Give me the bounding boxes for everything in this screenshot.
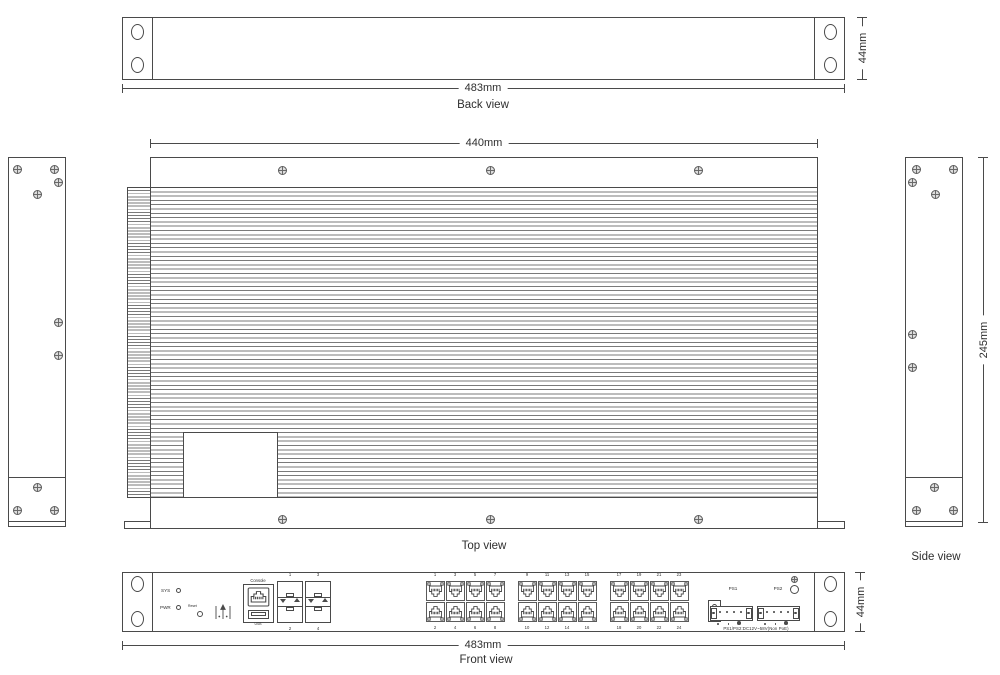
- shape: [523, 589, 531, 592]
- front-height-dim: 44mm: [855, 581, 867, 624]
- terminal-pin-dot: [717, 623, 719, 625]
- power-spec: PS1/PS2:DC12V~58V(Non PoE): [723, 626, 788, 631]
- mount-hole: [131, 24, 144, 40]
- rj45-port-14: [558, 602, 577, 622]
- shape: [579, 583, 581, 585]
- screw-icon: [931, 190, 940, 199]
- triangle-down-icon: [280, 599, 286, 603]
- port-number-10: 10: [525, 625, 530, 630]
- rj45-port-20: [630, 602, 649, 622]
- screw-icon: [278, 515, 287, 524]
- usb-label: USB: [255, 622, 262, 626]
- screw-icon: [50, 165, 59, 174]
- shape: [471, 589, 479, 592]
- back-height-dim: 44mm: [857, 27, 869, 70]
- side-view-left-base: [8, 521, 66, 527]
- up-arrows-icon: [214, 603, 232, 621]
- shape: [579, 618, 581, 620]
- rj45-port-8: [486, 602, 505, 622]
- shape: [226, 616, 228, 618]
- shape: [671, 583, 673, 585]
- dim-tick: [122, 641, 123, 650]
- port-number-8: 8: [494, 625, 496, 630]
- shape: [487, 583, 489, 585]
- port-number-13: 13: [565, 572, 570, 577]
- rj45-port-21: [650, 581, 669, 601]
- shape: [675, 612, 683, 615]
- console-port: [247, 587, 270, 607]
- screw-icon: [33, 190, 42, 199]
- port-number-21: 21: [657, 572, 662, 577]
- top-view-front-band: [150, 497, 818, 529]
- ps2-label: PS2: [774, 586, 783, 591]
- shape: [572, 583, 574, 585]
- triangle-down-icon: [308, 599, 314, 603]
- rj45-port-3: [446, 581, 465, 601]
- mount-hole: [131, 611, 144, 627]
- terminal-pin-dot: [784, 621, 788, 625]
- screw-icon: [949, 165, 958, 174]
- screw-icon: [13, 165, 22, 174]
- terminal-pin-dot: [733, 611, 735, 613]
- shape: [500, 618, 502, 620]
- sfp-latch: [286, 593, 294, 597]
- shape: [440, 583, 442, 585]
- sys-led-label: SYS: [161, 588, 170, 593]
- screw-icon: [50, 506, 59, 515]
- mount-hole: [824, 24, 837, 40]
- shape: [559, 583, 561, 585]
- dim-tick: [978, 522, 988, 523]
- back-width-dim: 483mm: [459, 82, 508, 94]
- shape: [451, 612, 459, 615]
- shape: [631, 583, 633, 585]
- mount-hole: [824, 57, 837, 73]
- shape: [491, 589, 499, 592]
- top-view-back-band: [150, 157, 818, 188]
- terminal-pin-dot: [787, 611, 789, 613]
- shape: [487, 618, 489, 620]
- rj45-port-12: [538, 602, 557, 622]
- dim-tick: [857, 79, 867, 80]
- side-view-left-band-line: [9, 477, 65, 478]
- shape: [519, 583, 521, 585]
- shape: [552, 583, 554, 585]
- shape: [447, 618, 449, 620]
- shape: [651, 583, 653, 585]
- rj45-port-9: [518, 581, 537, 601]
- shape: [671, 618, 673, 620]
- port-number-19: 19: [637, 572, 642, 577]
- shape: [451, 589, 459, 592]
- port-number-24: 24: [677, 625, 682, 630]
- dim-tick: [844, 641, 845, 650]
- shape: [491, 612, 499, 615]
- shape: [655, 612, 663, 615]
- shape: [631, 618, 633, 620]
- shape: [539, 618, 541, 620]
- shape: [664, 618, 666, 620]
- shape: [467, 618, 469, 620]
- shape: [539, 583, 541, 585]
- back-view-label: Back view: [457, 99, 509, 111]
- shape: [427, 583, 429, 585]
- rj45-port-22: [650, 602, 669, 622]
- port-number-3: 3: [454, 572, 456, 577]
- rj45-port-6: [466, 602, 485, 622]
- terminal-pin-dot: [719, 611, 721, 613]
- dim-tick: [150, 139, 151, 148]
- triangle-up-icon: [294, 598, 300, 602]
- terminal-pin-dot: [780, 611, 782, 613]
- side-fins-left: [127, 187, 151, 498]
- shape: [431, 612, 439, 615]
- mount-hole: [131, 57, 144, 73]
- sfp-latch: [314, 593, 322, 597]
- rj45-port-5: [466, 581, 485, 601]
- shape: [460, 618, 462, 620]
- terminal-pin-dot: [740, 611, 742, 613]
- shape: [500, 583, 502, 585]
- rj45-port-4: [446, 602, 465, 622]
- side-view-left-body: [8, 157, 66, 522]
- rj45-port-18: [610, 602, 629, 622]
- mount-hole: [824, 576, 837, 592]
- ground-screw-icon: [791, 576, 798, 583]
- side-height-dim: 245mm: [978, 316, 990, 365]
- back-ear-divider-left: [152, 17, 153, 80]
- shape: [532, 618, 534, 620]
- rj45-port-24: [670, 602, 689, 622]
- top-view-label: Top view: [462, 540, 507, 552]
- shape: [592, 583, 594, 585]
- shape: [644, 618, 646, 620]
- shape: [467, 583, 469, 585]
- port-number-14: 14: [565, 625, 570, 630]
- screw-icon: [54, 178, 63, 187]
- screw-icon: [930, 483, 939, 492]
- port-number-9: 9: [526, 572, 528, 577]
- shape: [552, 618, 554, 620]
- port-number-16: 16: [585, 625, 590, 630]
- side-view-right-body: [905, 157, 963, 522]
- mount-hole: [824, 611, 837, 627]
- screw-icon: [912, 165, 921, 174]
- screw-icon: [33, 483, 42, 492]
- triangle-up-icon: [322, 598, 328, 602]
- screw-icon: [13, 506, 22, 515]
- label-cutout: [183, 432, 278, 498]
- shape: [563, 589, 571, 592]
- rj45-port-10: [518, 602, 537, 622]
- port-number-4: 4: [454, 625, 456, 630]
- rj45-port-16: [578, 602, 597, 622]
- switch-mechanical-drawing: 483mm Back view 44mm 440mm Top view 245m…: [0, 0, 1000, 675]
- shape: [471, 612, 479, 615]
- back-ear-divider-right: [814, 17, 815, 80]
- screw-icon: [908, 330, 917, 339]
- port-number-23: 23: [677, 572, 682, 577]
- shape: [519, 618, 521, 620]
- screw-icon: [54, 318, 63, 327]
- dim-tick: [978, 157, 988, 158]
- front-view-label: Front view: [459, 654, 512, 666]
- shape: [684, 618, 686, 620]
- terminal-pin-dot: [726, 611, 728, 613]
- shape: [644, 583, 646, 585]
- shape: [543, 589, 551, 592]
- rj45-port-1: [426, 581, 445, 601]
- shape: [523, 612, 531, 615]
- shape: [559, 618, 561, 620]
- dim-tick: [857, 17, 867, 18]
- port-number-7: 7: [494, 572, 496, 577]
- sfp-number: 1: [289, 572, 291, 577]
- shape: [427, 618, 429, 620]
- rj45-port-15: [578, 581, 597, 601]
- dim-tick: [817, 139, 818, 148]
- screw-icon: [908, 363, 917, 372]
- sfp-number: 2: [289, 626, 291, 631]
- shape: [611, 583, 613, 585]
- shape: [611, 618, 613, 620]
- shape: [563, 612, 571, 615]
- shape: [583, 589, 591, 592]
- shape: [460, 583, 462, 585]
- usb-slot: [251, 612, 266, 616]
- port-number-18: 18: [617, 625, 622, 630]
- rj45-port-13: [558, 581, 577, 601]
- port-number-12: 12: [545, 625, 550, 630]
- shape: [664, 583, 666, 585]
- screw-icon: [54, 351, 63, 360]
- dim-tick: [844, 84, 845, 93]
- port-number-1: 1: [434, 572, 436, 577]
- shape: [684, 583, 686, 585]
- port-number-22: 22: [657, 625, 662, 630]
- pwr-led-label: PWR: [160, 605, 171, 610]
- shape: [635, 589, 643, 592]
- ground-hole: [790, 585, 799, 594]
- shape: [624, 583, 626, 585]
- rj45-port-7: [486, 581, 505, 601]
- terminal-pin-dot: [766, 611, 768, 613]
- port-number-6: 6: [474, 625, 476, 630]
- screw-icon: [908, 178, 917, 187]
- shape: [624, 618, 626, 620]
- port-number-20: 20: [637, 625, 642, 630]
- dim-tick: [855, 631, 865, 632]
- shape: [635, 612, 643, 615]
- rj45-port-2: [426, 602, 445, 622]
- port-number-5: 5: [474, 572, 476, 577]
- reset-button: [197, 611, 203, 617]
- shape: [440, 618, 442, 620]
- dim-tick: [122, 84, 123, 93]
- screw-icon: [694, 166, 703, 175]
- side-view-label: Side view: [911, 551, 960, 563]
- shape: [480, 618, 482, 620]
- rj45-port-17: [610, 581, 629, 601]
- ps1-label: PS1: [729, 586, 738, 591]
- port-number-15: 15: [585, 572, 590, 577]
- terminal-pin-dot: [764, 623, 766, 625]
- shape: [218, 616, 220, 618]
- shape: [615, 612, 623, 615]
- shape: [655, 589, 663, 592]
- sfp-latch: [286, 607, 294, 611]
- reset-label: Reset: [188, 604, 197, 608]
- front-ear-divider-left: [152, 572, 153, 632]
- terminal-pin-dot: [737, 621, 741, 625]
- screw-icon: [949, 506, 958, 515]
- side-view-right-band-line: [906, 477, 962, 478]
- shape: [254, 597, 263, 600]
- shape: [583, 612, 591, 615]
- front-width-dim: 483mm: [459, 639, 508, 651]
- port-number-11: 11: [545, 572, 549, 577]
- screw-icon: [912, 506, 921, 515]
- shape: [572, 618, 574, 620]
- shape: [532, 583, 534, 585]
- front-ear-divider-right: [814, 572, 815, 632]
- screw-icon: [278, 166, 287, 175]
- sfp-latch: [314, 607, 322, 611]
- screw-icon: [486, 166, 495, 175]
- shape: [447, 583, 449, 585]
- pwr-led: [176, 605, 181, 610]
- top-width-dim: 440mm: [460, 137, 509, 149]
- back-view-body: [122, 17, 845, 80]
- shape: [543, 612, 551, 615]
- shape: [651, 618, 653, 620]
- sys-led: [176, 588, 181, 593]
- screw-icon: [694, 515, 703, 524]
- shape: [615, 589, 623, 592]
- sfp-number: 3: [317, 572, 319, 577]
- rj45-port-23: [670, 581, 689, 601]
- rack-ear-foot-left: [124, 521, 151, 529]
- rack-ear-foot-right: [817, 521, 845, 529]
- sfp-number: 4: [317, 626, 319, 631]
- shape: [480, 583, 482, 585]
- rj45-port-11: [538, 581, 557, 601]
- console-label: Console: [250, 578, 265, 583]
- shape: [592, 618, 594, 620]
- screw-icon: [486, 515, 495, 524]
- shape: [221, 605, 225, 609]
- port-number-17: 17: [617, 572, 622, 577]
- side-view-right-base: [905, 521, 963, 527]
- port-number-2: 2: [434, 625, 436, 630]
- shape: [431, 589, 439, 592]
- mount-hole: [131, 576, 144, 592]
- shape: [675, 589, 683, 592]
- dim-tick: [855, 572, 865, 573]
- terminal-pin-dot: [773, 611, 775, 613]
- rj45-port-19: [630, 581, 649, 601]
